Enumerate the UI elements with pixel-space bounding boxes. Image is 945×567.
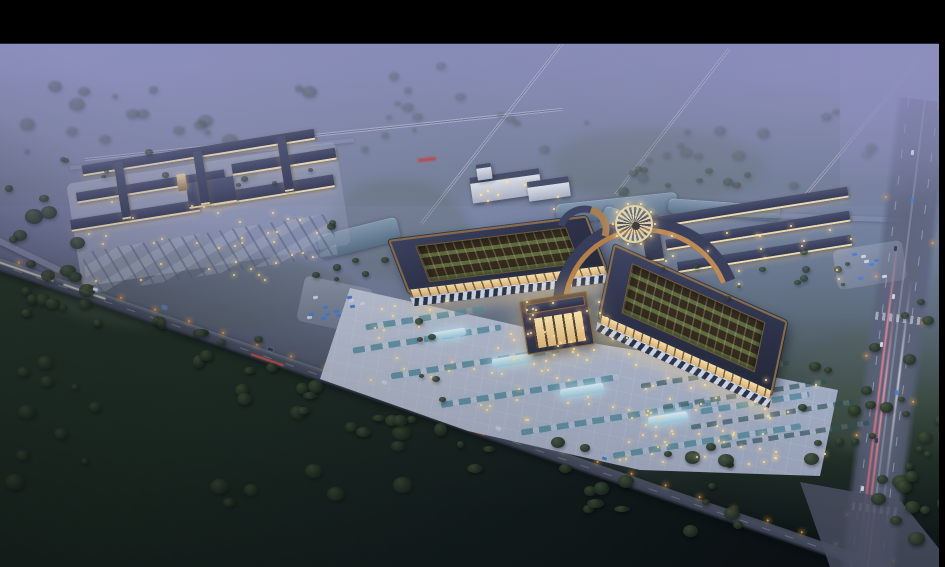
parked-car	[360, 302, 365, 305]
car	[382, 381, 388, 385]
parked-car	[350, 304, 355, 307]
vehicles	[0, 0, 945, 567]
letterbox-top	[0, 0, 945, 44]
parked-car	[325, 312, 330, 315]
parked-car	[861, 255, 866, 258]
car	[894, 246, 897, 251]
parked-car	[306, 316, 311, 319]
car	[861, 486, 864, 491]
parked-car	[309, 312, 314, 315]
car	[874, 438, 877, 443]
car	[892, 294, 895, 299]
parked-car	[869, 262, 874, 265]
car	[268, 347, 274, 351]
parked-car	[313, 296, 318, 299]
parked-car	[323, 306, 328, 309]
parked-car	[349, 299, 354, 302]
car	[910, 198, 913, 203]
parked-car	[882, 274, 887, 277]
aerial-rendering-scene	[0, 0, 945, 567]
car	[895, 390, 898, 395]
car	[880, 342, 883, 347]
car	[496, 426, 502, 430]
parked-car	[321, 317, 326, 320]
car	[911, 150, 914, 155]
parked-car	[334, 309, 339, 312]
parked-car	[864, 259, 869, 262]
parked-car	[336, 313, 341, 316]
car	[602, 456, 608, 460]
parked-car	[852, 253, 857, 256]
car	[161, 305, 167, 309]
car	[93, 287, 99, 291]
parked-car	[874, 258, 879, 261]
parked-car	[858, 276, 863, 279]
letterbox-right	[939, 0, 945, 567]
